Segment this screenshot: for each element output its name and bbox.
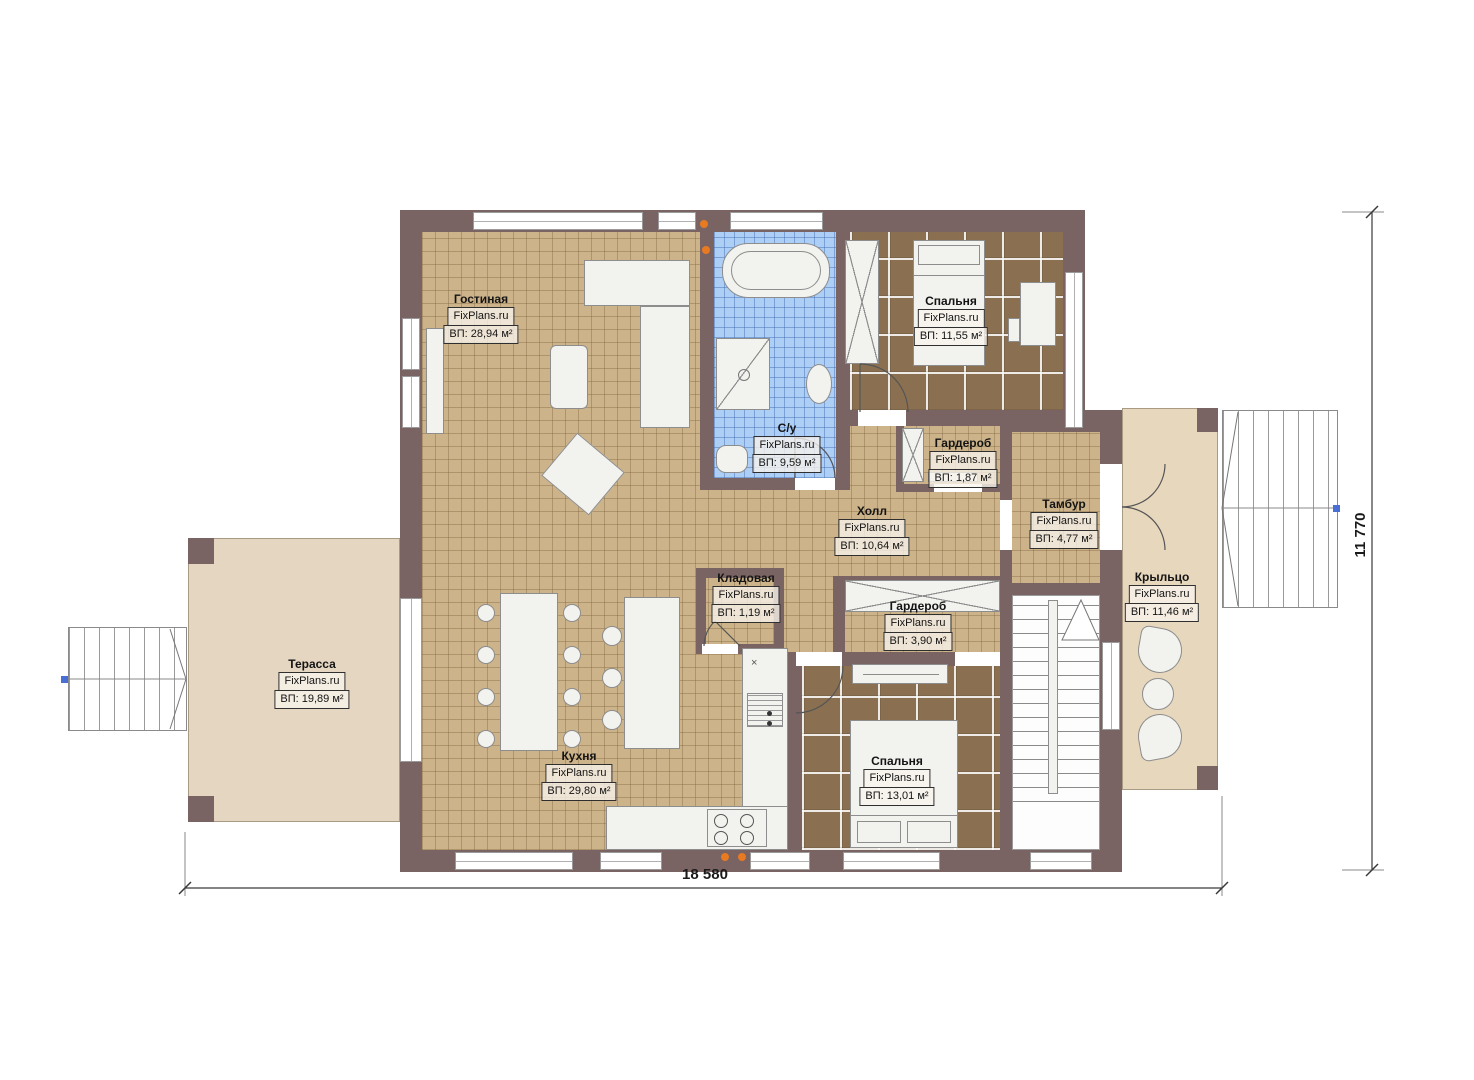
window [750,852,810,870]
door-opening [796,652,842,666]
room-label-bathroom: С/у FixPlans.ru ВП: 9,59 м² [752,421,821,473]
room-name: С/у [778,421,797,435]
height-dimension-label: 11 770 [1352,494,1369,576]
room-label-pantry: Кладовая FixPlans.ru ВП: 1,19 м² [711,571,780,623]
room-area: ВП: 9,59 м² [752,454,821,473]
window [473,212,643,230]
stool [602,710,622,730]
window [1102,642,1120,730]
burner [740,831,754,845]
utility-dot [721,853,729,861]
room-area: ВП: 19,89 м² [274,690,349,709]
room-name: Гардероб [890,599,947,613]
chair [563,646,581,664]
room-area: ВП: 10,64 м² [834,537,909,556]
shower-drain [738,369,750,381]
tv-stand [426,328,444,434]
room-label-living: Гостиная FixPlans.ru ВП: 28,94 м² [443,292,518,344]
door-opening [858,410,906,426]
room-name: Терасса [288,657,336,671]
chair [563,688,581,706]
room-name: Гостиная [454,292,508,306]
burner [714,814,728,828]
chair [477,730,495,748]
sofa [640,306,690,428]
wall [788,652,802,850]
wall [833,576,845,664]
chair [477,688,495,706]
terrace-pillar [188,796,214,822]
room-brand: FixPlans.ru [838,519,905,538]
sink [806,364,832,404]
room-brand: FixPlans.ru [917,309,984,328]
wall [696,568,706,654]
stool [1008,318,1020,342]
room-name: Холл [857,504,887,518]
room-name: Крыльцо [1135,570,1190,584]
terrace-exterior-stairs [68,627,187,731]
room-label-kitchen: Кухня FixPlans.ru ВП: 29,80 м² [541,749,616,801]
wardrobe-unit [845,240,879,364]
room-label-porch: Крыльцо FixPlans.ru ВП: 11,46 м² [1125,570,1199,622]
floor-plan: × [0,0,1474,1080]
stool [602,668,622,688]
window [658,212,696,230]
room-area: ВП: 4,77 м² [1029,530,1098,549]
dresser-line [863,674,939,675]
window [455,852,573,870]
dining-table [500,593,558,751]
dimension-tick [1366,864,1378,876]
room-brand: FixPlans.ru [447,307,514,326]
stairs-rail [1048,600,1058,794]
utility-dot [700,220,708,228]
room-label-tambour: Тамбур FixPlans.ru ВП: 4,77 м² [1029,497,1098,549]
porch-pillar [1197,766,1218,790]
pillow [918,245,980,265]
utility-dot [702,246,710,254]
utility-dot [738,853,746,861]
room-area: ВП: 11,46 м² [1125,603,1199,622]
room-label-wardrobe2: Гардероб FixPlans.ru ВП: 3,90 м² [883,599,952,651]
dimension-tick [1216,882,1228,894]
counter-x-mark: × [751,657,757,669]
axis-marker [1333,505,1340,512]
window [600,852,662,870]
window [730,212,823,230]
room-name: Спальня [925,294,977,308]
room-area: ВП: 1,87 м² [928,469,997,488]
room-brand: FixPlans.ru [929,451,996,470]
door-opening [702,644,738,654]
room-name: Кладовая [717,571,774,585]
kitchen-sink [747,693,783,727]
terrace-pillar [188,538,214,564]
blanket-line [851,815,957,816]
room-label-terrace: Терасса FixPlans.ru ВП: 19,89 м² [274,657,349,709]
kitchen-counter [606,806,788,850]
bathtub [722,243,830,298]
room-brand: FixPlans.ru [863,769,930,788]
blanket-line [914,275,984,276]
room-brand: FixPlans.ru [1030,512,1097,531]
stove [707,809,767,847]
stool [602,626,622,646]
door-opening [955,652,1000,666]
room-name: Гардероб [935,436,992,450]
width-dimension-label: 18 580 [655,866,755,883]
room-area: ВП: 3,90 м² [883,632,952,651]
room-brand: FixPlans.ru [545,764,612,783]
wall [700,232,714,490]
window [402,376,420,428]
sliding-door [400,598,422,762]
door-opening [795,478,835,490]
wall [1000,426,1012,850]
room-name: Кухня [561,749,596,763]
door-opening [1000,500,1012,550]
room-brand: FixPlans.ru [712,586,779,605]
room-area: ВП: 28,94 м² [443,325,518,344]
faucet-dot [767,711,772,716]
room-brand: FixPlans.ru [1128,585,1195,604]
shower [716,338,770,410]
room-label-wardrobe1: Гардероб FixPlans.ru ВП: 1,87 м² [928,436,997,488]
room-label-bedroom2: Спальня FixPlans.ru ВП: 13,01 м² [859,754,934,806]
room-area: ВП: 29,80 м² [541,782,616,801]
room-name: Спальня [871,754,923,768]
wall [1012,583,1100,595]
sofa [584,260,690,306]
axis-marker [61,676,68,683]
chair [563,604,581,622]
pillow [907,821,951,843]
window [402,318,420,370]
chair [477,646,495,664]
wall [400,210,422,872]
dimension-tick [1366,206,1378,218]
window [843,852,940,870]
room-area: ВП: 11,55 м² [914,327,988,346]
chair [477,604,495,622]
bathtub-basin [731,251,821,290]
wardrobe-unit [902,428,924,482]
porch-pillar [1197,408,1218,432]
window [1065,272,1083,428]
toilet [716,445,748,473]
room-area: ВП: 13,01 м² [859,787,934,806]
entrance-door-opening [1100,464,1122,550]
faucet-dot [767,721,772,726]
pillow [857,821,901,843]
coffee-table [550,345,588,409]
room-brand: FixPlans.ru [884,614,951,633]
room-area: ВП: 1,19 м² [711,604,780,623]
dresser [1020,282,1056,346]
kitchen-island [624,597,680,749]
room-label-hall: Холл FixPlans.ru ВП: 10,64 м² [834,504,909,556]
window [1030,852,1092,870]
room-brand: FixPlans.ru [278,672,345,691]
burner [714,831,728,845]
dresser [852,664,948,684]
room-label-bedroom1: Спальня FixPlans.ru ВП: 11,55 м² [914,294,988,346]
burner [740,814,754,828]
dimension-tick [179,882,191,894]
room-brand: FixPlans.ru [753,436,820,455]
porch-table [1142,678,1174,710]
porch-exterior-stairs [1222,410,1338,608]
room-name: Тамбур [1042,497,1086,511]
chair [563,730,581,748]
